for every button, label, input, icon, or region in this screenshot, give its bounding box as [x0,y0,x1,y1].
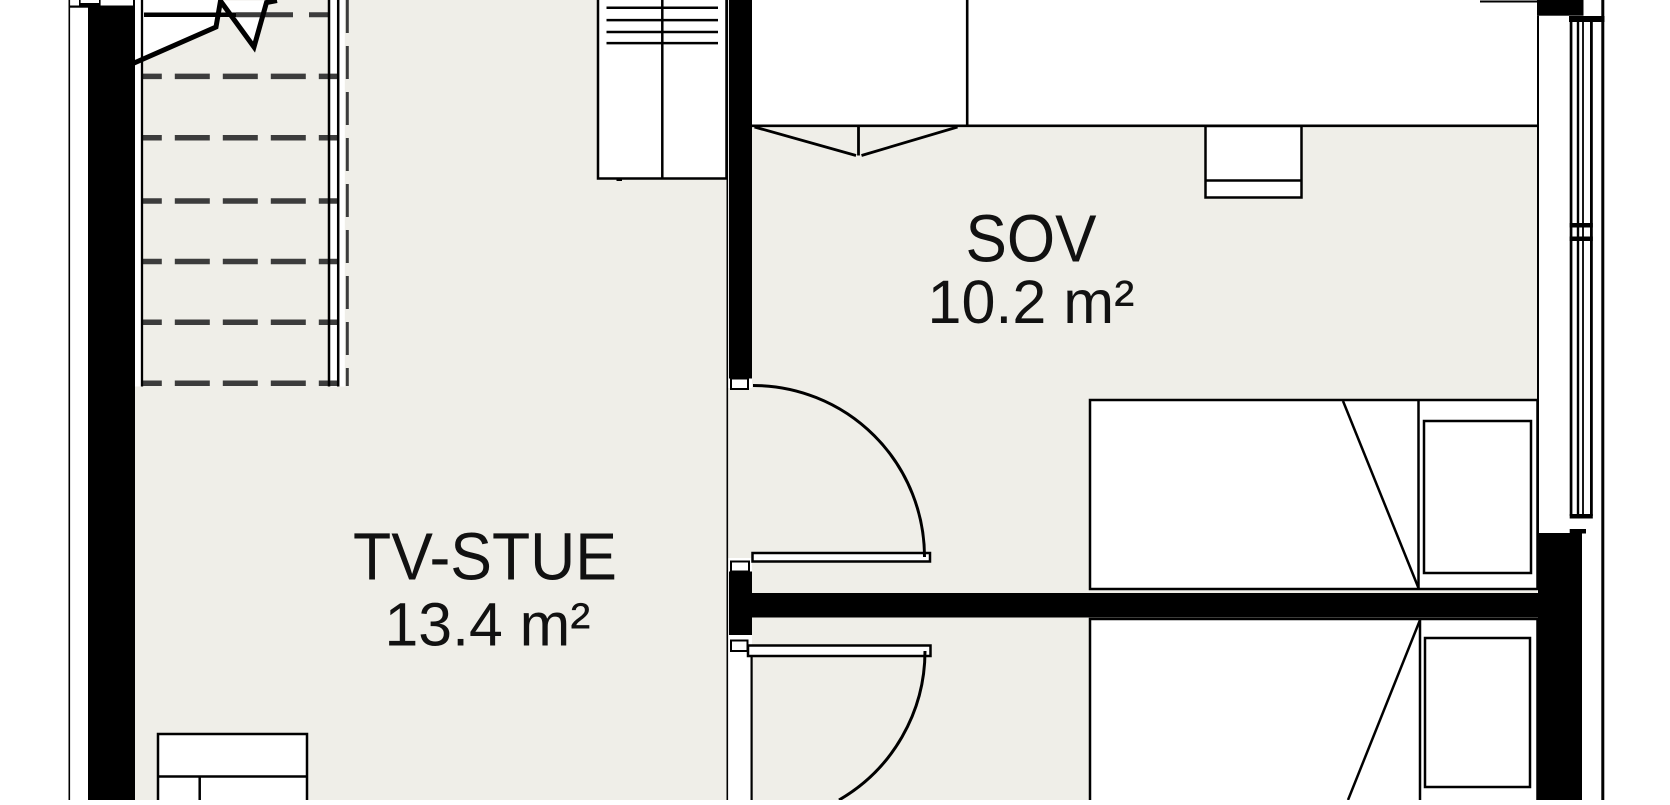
svg-text:10.2 m²: 10.2 m² [928,268,1135,336]
svg-text:TV-STUE: TV-STUE [353,520,617,595]
svg-text:13.4 m²: 13.4 m² [385,591,591,659]
svg-text:SOV: SOV [966,202,1097,277]
